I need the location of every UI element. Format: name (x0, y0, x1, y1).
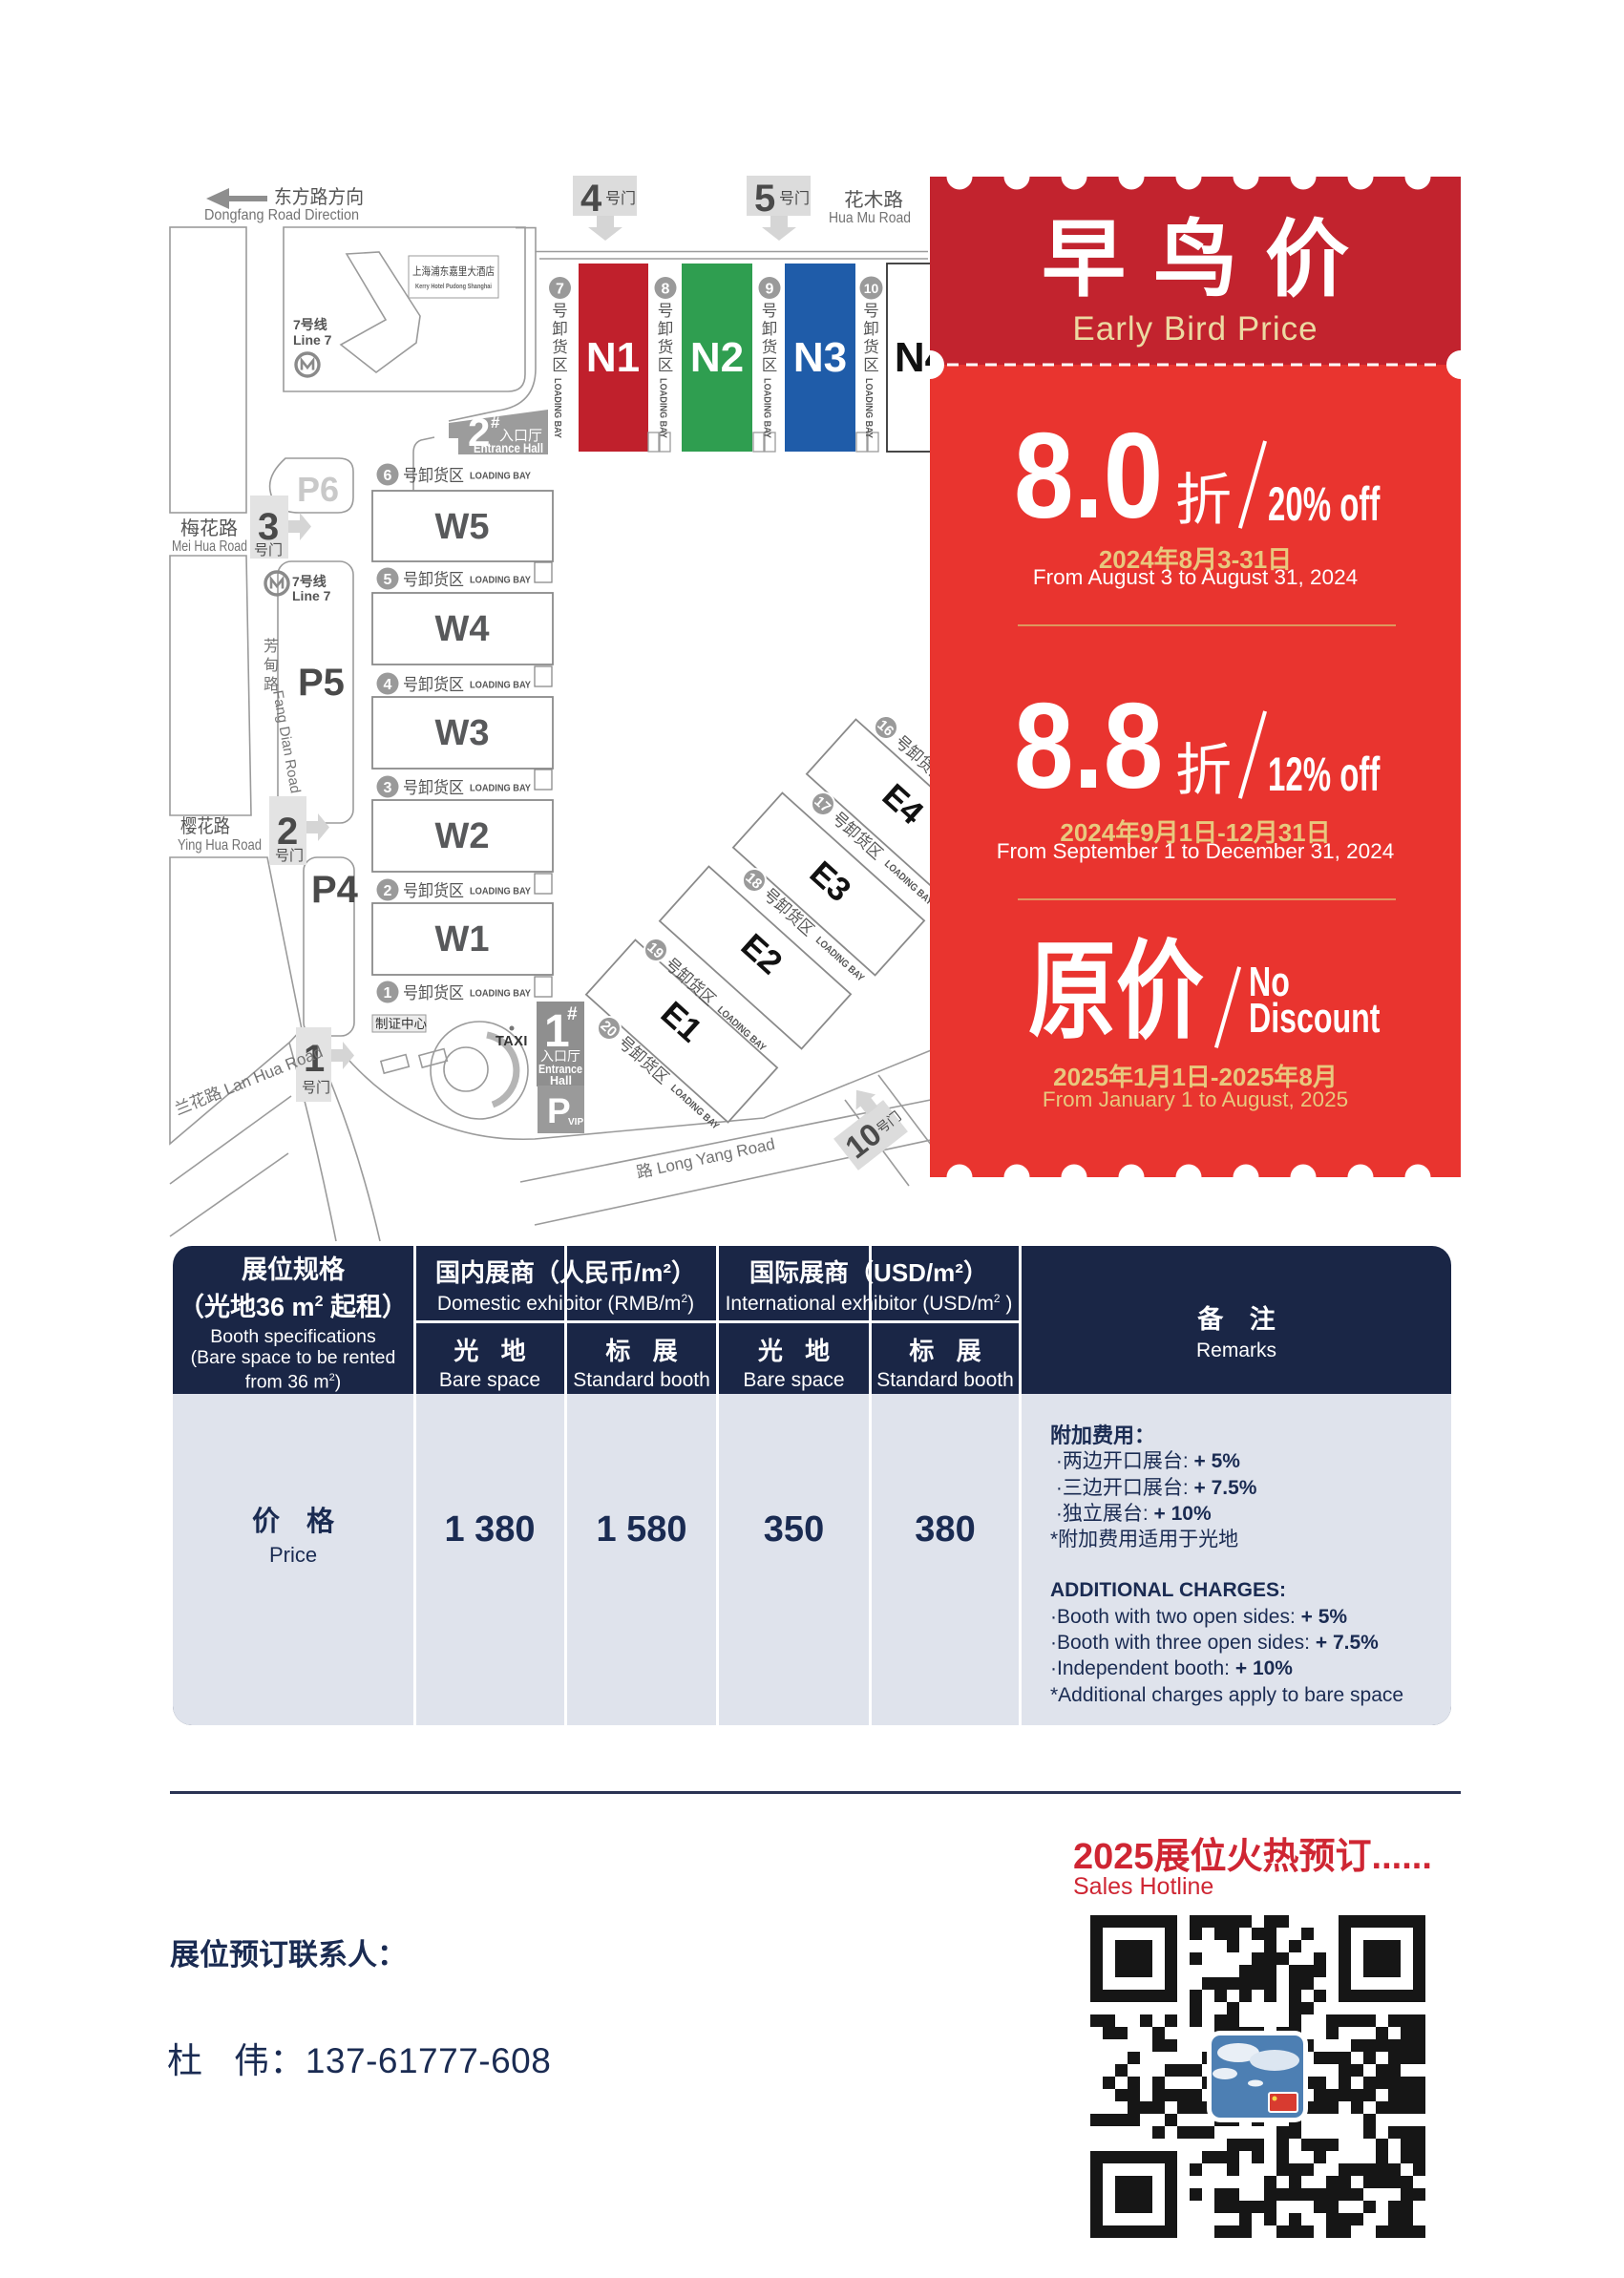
svg-text:货: 货 (552, 338, 568, 356)
svg-text:2: 2 (384, 883, 392, 899)
svg-text:号: 号 (552, 303, 568, 320)
svg-text:号门: 号门 (779, 190, 810, 207)
svg-text:Mei Hua Road: Mei Hua Road (172, 538, 247, 555)
svg-text:号门: 号门 (302, 1080, 330, 1096)
svg-text:LOADING BAY: LOADING BAY (658, 378, 669, 438)
svg-text:9: 9 (766, 282, 774, 298)
svg-text:上海浦东嘉里大酒店: 上海浦东嘉里大酒店 (412, 264, 495, 278)
svg-text:P: P (547, 1091, 571, 1130)
svg-text:区: 区 (863, 357, 879, 374)
svg-text:卸: 卸 (863, 320, 879, 338)
svg-text:LOADING BAY: LOADING BAY (470, 886, 531, 897)
svg-text:货: 货 (863, 338, 879, 356)
svg-text:东方路方向: 东方路方向 (274, 186, 364, 208)
svg-text:入口厅: 入口厅 (540, 1048, 580, 1064)
svg-text:Ying Hua Road: Ying Hua Road (178, 837, 262, 854)
svg-text:N3: N3 (793, 334, 847, 381)
svg-text:号: 号 (863, 303, 879, 320)
svg-text:号卸货区: 号卸货区 (403, 778, 464, 797)
svg-text:4: 4 (384, 677, 392, 693)
svg-text:1: 1 (384, 985, 392, 1002)
svg-text:号门: 号门 (605, 190, 636, 207)
svg-text:LOADING BAY: LOADING BAY (762, 378, 773, 438)
svg-text:TAXI: TAXI (496, 1034, 528, 1049)
svg-text:LOADING BAY: LOADING BAY (470, 783, 531, 794)
svg-text:甸: 甸 (264, 657, 279, 674)
svg-text:卸: 卸 (552, 320, 568, 338)
svg-text:号卸货区: 号卸货区 (403, 466, 464, 485)
svg-text:7: 7 (556, 282, 564, 298)
svg-text:区: 区 (762, 357, 778, 374)
svg-text:区: 区 (658, 357, 674, 374)
svg-text:号卸货区: 号卸货区 (403, 675, 464, 694)
svg-text:号: 号 (658, 303, 674, 320)
svg-text:Hall: Hall (550, 1074, 572, 1087)
svg-text:号: 号 (762, 303, 778, 320)
svg-text:8: 8 (662, 282, 670, 298)
svg-text:Entrance Hall: Entrance Hall (474, 441, 543, 455)
svg-text:5: 5 (384, 572, 392, 588)
svg-text:Hua Mu Road: Hua Mu Road (829, 210, 911, 226)
svg-text:W1: W1 (435, 919, 490, 960)
svg-text:LOADING BAY: LOADING BAY (470, 680, 531, 691)
svg-text:W2: W2 (435, 816, 490, 856)
svg-text:P4: P4 (311, 869, 359, 911)
svg-text:Line 7: Line 7 (292, 588, 331, 603)
svg-text:LOADING BAY: LOADING BAY (863, 378, 875, 438)
svg-text:Line 7: Line 7 (293, 332, 332, 348)
svg-text:号门: 号门 (275, 848, 304, 864)
svg-text:7号线: 7号线 (292, 574, 327, 589)
svg-text:LOADING BAY: LOADING BAY (552, 378, 563, 438)
svg-text:P6: P6 (297, 470, 339, 509)
svg-text:3: 3 (384, 780, 392, 796)
svg-text:Kerry Hotel Pudong Shanghai: Kerry Hotel Pudong Shanghai (415, 282, 492, 290)
svg-text:樱花路: 樱花路 (180, 815, 230, 837)
svg-text:W3: W3 (435, 713, 490, 753)
svg-text:卸: 卸 (762, 320, 778, 338)
svg-text:VIP: VIP (568, 1117, 583, 1128)
svg-text:货: 货 (762, 338, 778, 356)
svg-text:Dongfang Road Direction: Dongfang Road Direction (204, 207, 359, 223)
svg-text:号卸货区: 号卸货区 (403, 983, 464, 1002)
svg-text:LOADING BAY: LOADING BAY (470, 988, 531, 1000)
svg-text:7号线: 7号线 (293, 317, 327, 332)
svg-text:货: 货 (658, 338, 674, 356)
svg-text:W4: W4 (435, 609, 490, 649)
svg-text:LOADING BAY: LOADING BAY (470, 471, 531, 482)
svg-text:#: # (567, 1004, 578, 1024)
svg-text:10: 10 (864, 281, 879, 296)
svg-text:LOADING BAY: LOADING BAY (470, 575, 531, 586)
svg-text:花木路: 花木路 (844, 189, 903, 211)
svg-text:芳: 芳 (264, 638, 279, 655)
svg-text:号门: 号门 (254, 542, 283, 559)
svg-text:W5: W5 (435, 507, 490, 547)
svg-text:6: 6 (384, 468, 392, 484)
svg-text:梅花路: 梅花路 (180, 517, 238, 539)
svg-text:区: 区 (552, 357, 568, 374)
svg-text:路 Long Yang Road: 路 Long Yang Road (635, 1135, 776, 1182)
svg-text:N2: N2 (690, 334, 744, 381)
svg-text:号卸货区: 号卸货区 (403, 570, 464, 589)
svg-text:号卸货区: 号卸货区 (403, 881, 464, 900)
svg-text:卸: 卸 (658, 320, 674, 338)
svg-text:4: 4 (580, 178, 602, 220)
svg-text:P5: P5 (298, 662, 345, 704)
svg-text:5: 5 (754, 178, 775, 220)
svg-text:N1: N1 (586, 334, 640, 381)
svg-text:制证中心: 制证中心 (375, 1017, 427, 1031)
svg-text:2: 2 (277, 811, 298, 853)
